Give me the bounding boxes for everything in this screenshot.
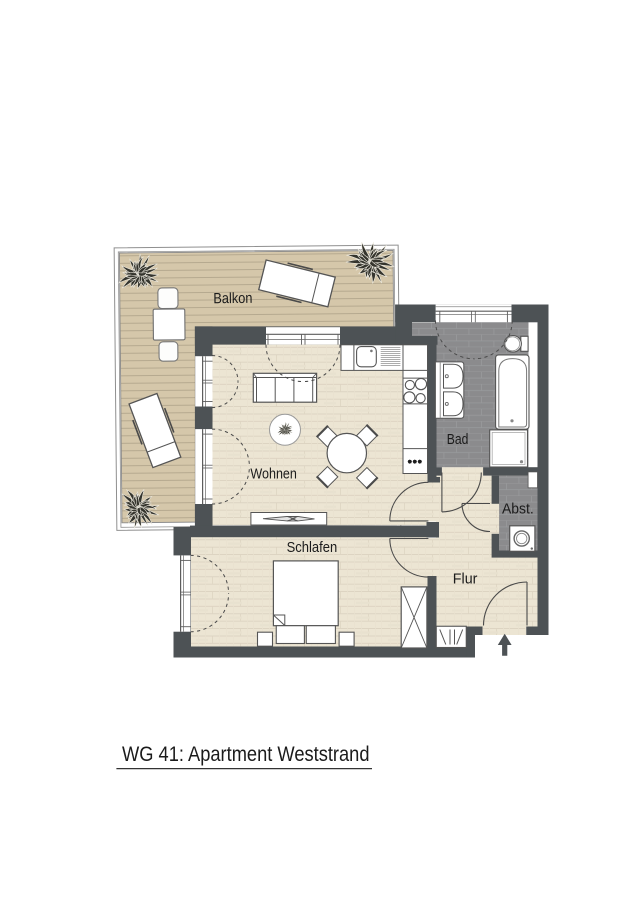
svg-text:Flur: Flur <box>453 571 478 587</box>
svg-text:Schlafen: Schlafen <box>287 540 338 556</box>
svg-text:Balkon: Balkon <box>213 291 252 307</box>
svg-text:WG 41: Apartment Weststrand: WG 41: Apartment Weststrand <box>122 742 370 766</box>
svg-text:Wohnen: Wohnen <box>250 467 297 483</box>
svg-text:Bad: Bad <box>447 432 469 448</box>
svg-text:Abst.: Abst. <box>502 502 534 518</box>
